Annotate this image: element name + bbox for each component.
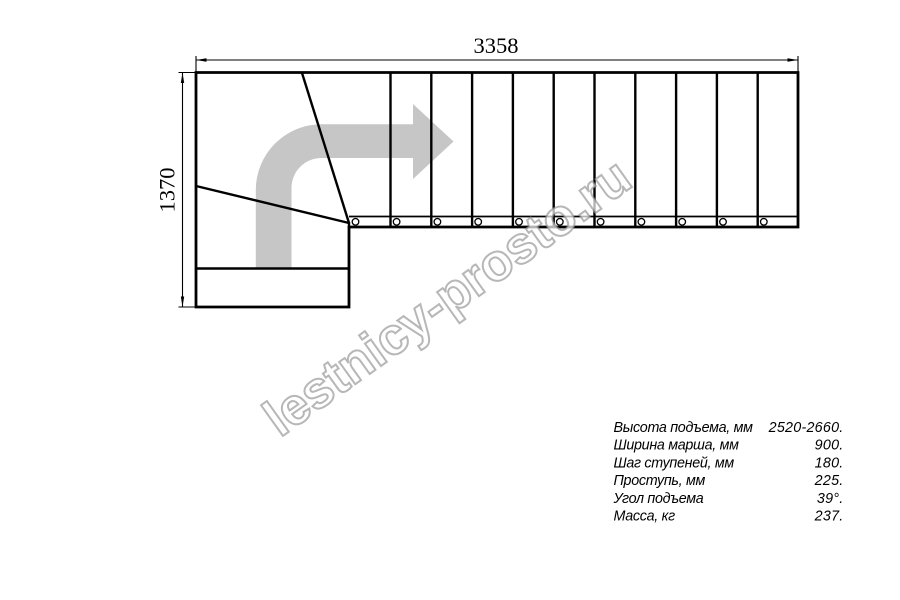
- svg-text:900.: 900.: [815, 438, 844, 454]
- svg-text:3358: 3358: [474, 33, 519, 58]
- svg-text:Проступь, мм: Проступь, мм: [614, 473, 706, 489]
- svg-text:Высота подъема, мм: Высота подъема, мм: [614, 420, 754, 436]
- svg-text:Ширина марша, мм: Ширина марша, мм: [614, 438, 740, 454]
- svg-text:225.: 225.: [814, 473, 844, 489]
- svg-text:Шаг ступеней, мм: Шаг ступеней, мм: [614, 455, 735, 471]
- svg-text:Масса, кг: Масса, кг: [614, 509, 676, 525]
- svg-text:Угол подъема: Угол подъема: [613, 491, 704, 507]
- svg-text:1370: 1370: [155, 168, 180, 213]
- svg-text:237.: 237.: [814, 509, 844, 525]
- svg-text:180.: 180.: [815, 455, 844, 471]
- svg-text:2520-2660.: 2520-2660.: [768, 420, 844, 436]
- svg-text:39°.: 39°.: [817, 491, 844, 507]
